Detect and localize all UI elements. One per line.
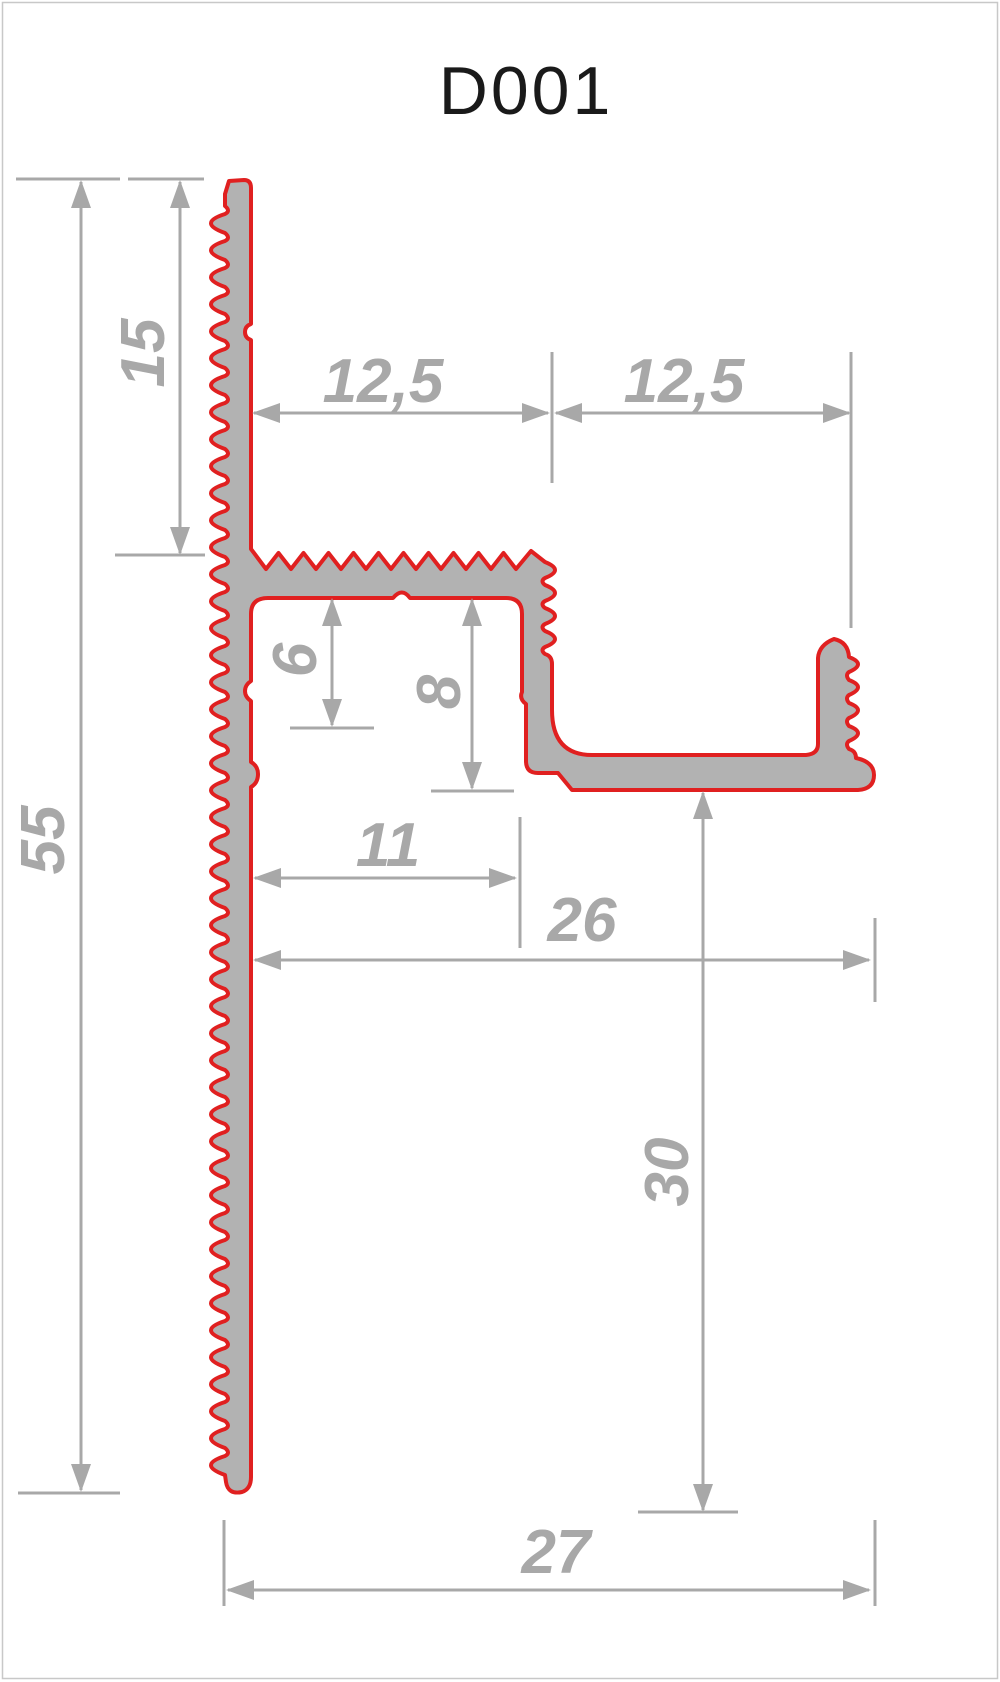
dimension-arrowhead	[253, 868, 281, 888]
dimension-label-depth-small: 6	[261, 642, 330, 677]
dimension-label-height-lower: 30	[633, 1138, 702, 1207]
profile-drawing: 551512,512,56811263027 D001	[0, 0, 1000, 1682]
dimension-arrowhead	[71, 1464, 91, 1492]
dimension-arrowhead	[843, 950, 871, 970]
dimension-arrowhead	[693, 1484, 713, 1512]
dimension-label-width-right-half: 12,5	[624, 347, 746, 416]
dimension-label-height-total: 55	[9, 804, 78, 874]
dimension-width-inner: 11	[253, 811, 520, 948]
dimension-arrowhead	[170, 180, 190, 208]
dimension-arrowhead	[71, 180, 91, 208]
dimension-arrowhead	[226, 1580, 254, 1600]
dimension-arrowhead	[252, 403, 280, 423]
dimension-arrowhead	[522, 403, 550, 423]
dimension-arrowhead	[322, 699, 342, 727]
dimension-label-width-base: 26	[547, 886, 617, 955]
dimension-height-lower: 30	[633, 791, 738, 1512]
dimension-depth-large: 8	[405, 598, 514, 791]
dimension-height-total: 55	[9, 179, 120, 1493]
dimension-width-right-half: 12,5	[554, 347, 851, 628]
dimension-width-base: 26	[253, 886, 875, 1002]
drawing-border	[3, 3, 998, 1679]
dimension-label-width-left-half: 12,5	[323, 347, 445, 416]
dimension-arrowhead	[253, 950, 281, 970]
dimension-label-width-total: 27	[521, 1518, 593, 1587]
drawing-canvas: 551512,512,56811263027 D001	[0, 0, 1000, 1682]
dimension-arrowhead	[823, 403, 851, 423]
dimension-arrowhead	[462, 598, 482, 626]
dimension-label-depth-large: 8	[405, 674, 474, 709]
dimension-arrowhead	[462, 762, 482, 790]
dimension-arrowhead	[322, 598, 342, 626]
dimension-arrowhead	[170, 527, 190, 555]
dimension-arrowhead	[843, 1580, 871, 1600]
dimension-label-width-inner: 11	[356, 811, 420, 880]
dimension-width-left-half: 12,5	[252, 347, 552, 483]
drawing-title: D001	[439, 53, 614, 129]
dimension-arrowhead	[489, 868, 517, 888]
profile-cross-section	[211, 180, 874, 1493]
dimension-arrowhead	[693, 791, 713, 819]
dimension-label-height-top: 15	[109, 317, 178, 387]
dimension-arrowhead	[554, 403, 582, 423]
dimension-depth-small: 6	[261, 598, 374, 728]
dimension-width-total: 27	[224, 1518, 875, 1606]
dimension-height-top: 15	[109, 179, 205, 555]
dimensions-layer: 551512,512,56811263027	[9, 179, 875, 1606]
